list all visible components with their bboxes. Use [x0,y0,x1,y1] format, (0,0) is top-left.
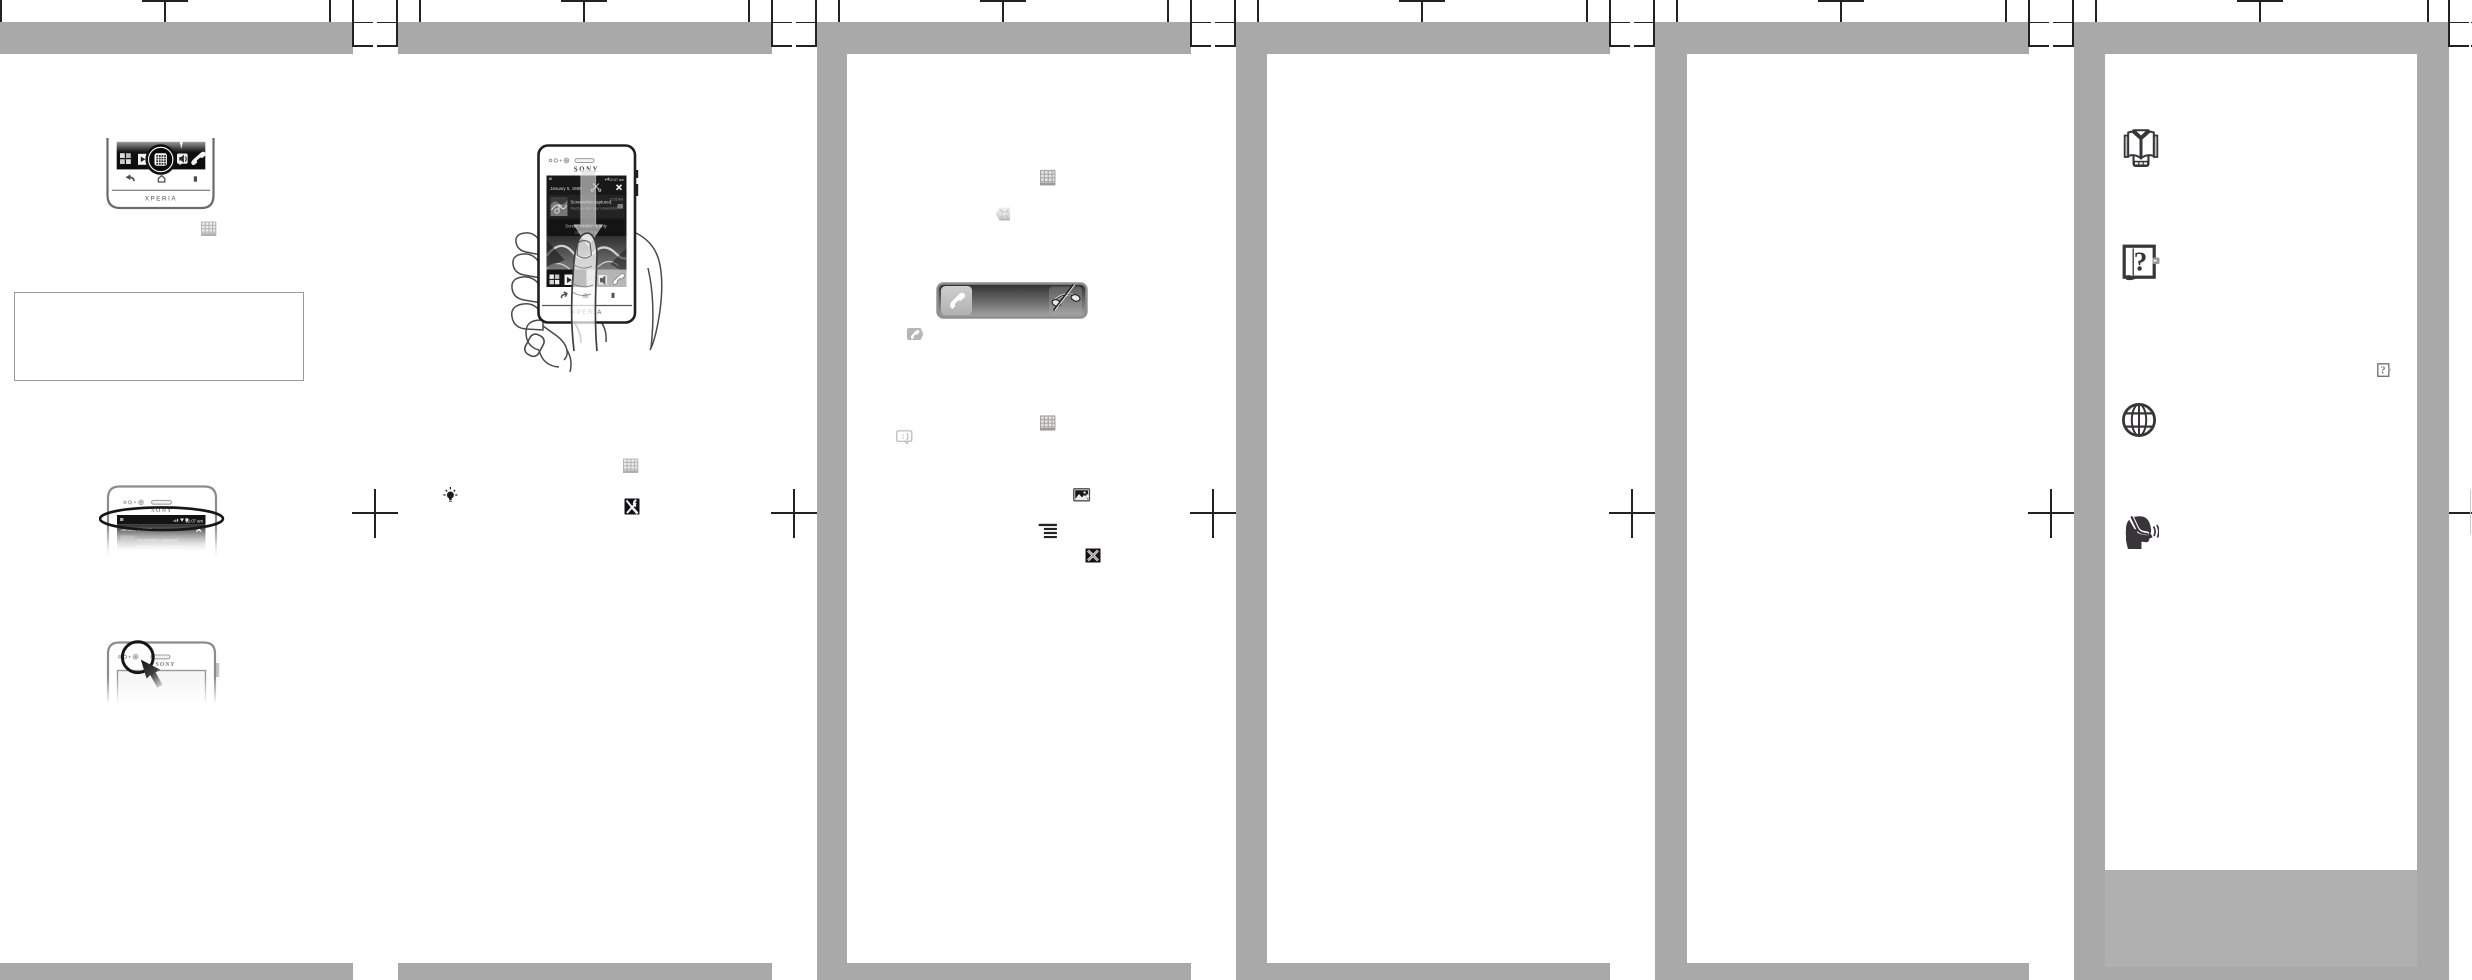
svg-text:12:07 am: 12:07 am [186,518,204,523]
svg-text:?: ? [2381,366,2386,377]
svg-text:January 5, 1980: January 5, 1980 [550,186,582,191]
svg-text::): :) [901,434,909,442]
svg-text:SONY: SONY [156,662,176,668]
svg-text:?: ? [2134,247,2148,277]
svg-text:XPERIA: XPERIA [145,196,177,203]
svg-text:12:05 AM: 12:05 AM [610,198,624,202]
svg-text:12:07 am: 12:07 am [609,178,624,182]
